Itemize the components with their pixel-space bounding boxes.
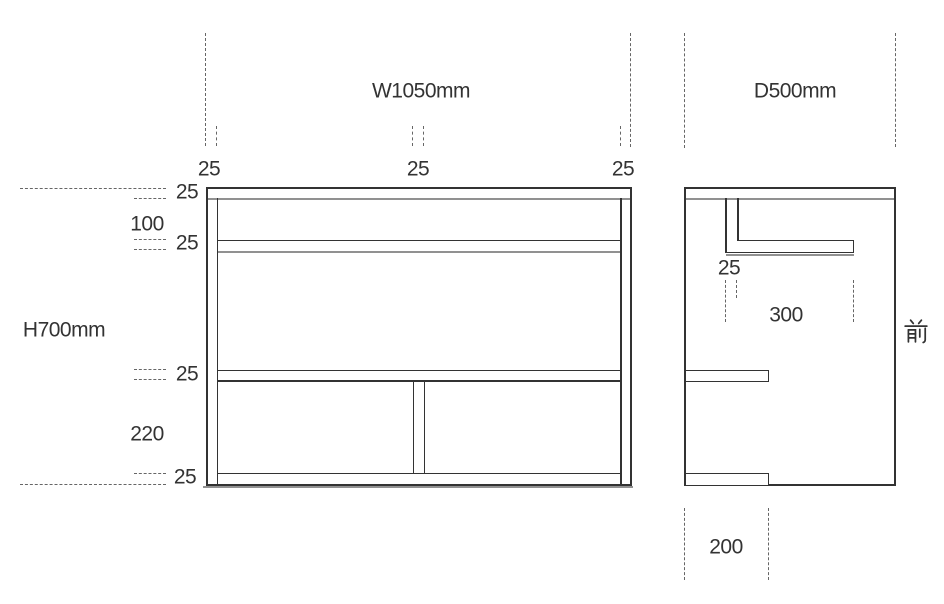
front-upper-shelf-top-line xyxy=(218,240,620,242)
side-bracket-left-edge xyxy=(725,198,727,252)
dim-guide-v xyxy=(412,126,413,146)
dim-guide-v xyxy=(684,508,685,580)
dim-guide-h xyxy=(134,369,166,370)
front-width-label: W1050mm xyxy=(372,81,470,102)
front-right-panel-thickness-label: 25 xyxy=(612,159,634,180)
dim-guide-v xyxy=(853,280,854,322)
front-marker-kanji xyxy=(903,318,929,344)
front-left-panel-thickness-label: 25 xyxy=(198,159,220,180)
side-outer-box xyxy=(684,187,896,486)
side-upper-shelf-top-line xyxy=(737,240,854,242)
front-upper-shelf-thickness-label: 25 xyxy=(176,233,198,254)
front-height-label: H700mm xyxy=(23,320,105,341)
dim-guide-h xyxy=(134,473,166,474)
front-top-board-underside-line xyxy=(208,198,630,200)
dim-guide-v xyxy=(725,280,726,322)
dim-guide-v xyxy=(423,126,424,146)
front-bottom-board-thickness-label: 25 xyxy=(174,467,196,488)
dim-guide-v xyxy=(620,126,621,146)
front-bottom-gap-label: 220 xyxy=(130,424,164,445)
side-upper-shelf-underside-line xyxy=(726,254,854,256)
front-center-divider-thickness-label: 25 xyxy=(407,159,429,180)
side-bottom-board xyxy=(686,473,769,485)
dim-guide-h xyxy=(134,249,166,250)
dim-guide-h xyxy=(134,198,166,199)
side-depth-label: D500mm xyxy=(754,81,836,102)
side-bottom-board-depth-label: 200 xyxy=(709,537,743,558)
front-left-panel-inner-edge xyxy=(217,198,219,485)
dim-guide-v xyxy=(684,33,685,148)
dim-guide-v xyxy=(205,33,206,146)
side-top-board-underside-line xyxy=(686,198,894,200)
drawing-canvas: W1050mm 25 25 25 25 100 25 H700mm 25 220… xyxy=(0,0,944,604)
front-top-gap-label: 100 xyxy=(130,214,164,235)
dim-guide-v xyxy=(630,33,631,147)
front-right-panel-inner-edge xyxy=(620,198,622,485)
side-upper-shelf-depth-label: 300 xyxy=(769,305,803,326)
front-lower-shelf-thickness-label: 25 xyxy=(176,364,198,385)
dim-guide-h xyxy=(20,188,166,189)
dim-guide-h xyxy=(134,379,166,380)
front-base-shadow-line xyxy=(203,486,633,488)
dim-guide-h xyxy=(134,239,166,240)
front-center-divider xyxy=(413,382,425,474)
front-top-board-thickness-label: 25 xyxy=(176,182,198,203)
dim-guide-v xyxy=(736,280,737,298)
front-lower-shelf-top-line xyxy=(218,370,620,372)
front-upper-shelf-underside-line xyxy=(218,251,620,253)
dim-guide-v xyxy=(216,126,217,146)
side-middle-shelf xyxy=(686,370,769,383)
side-bracket-thickness-label: 25 xyxy=(718,258,740,279)
side-bracket-right-edge xyxy=(737,198,739,240)
dim-guide-h xyxy=(20,484,166,485)
dim-guide-v xyxy=(768,508,769,580)
dim-guide-v xyxy=(895,33,896,147)
